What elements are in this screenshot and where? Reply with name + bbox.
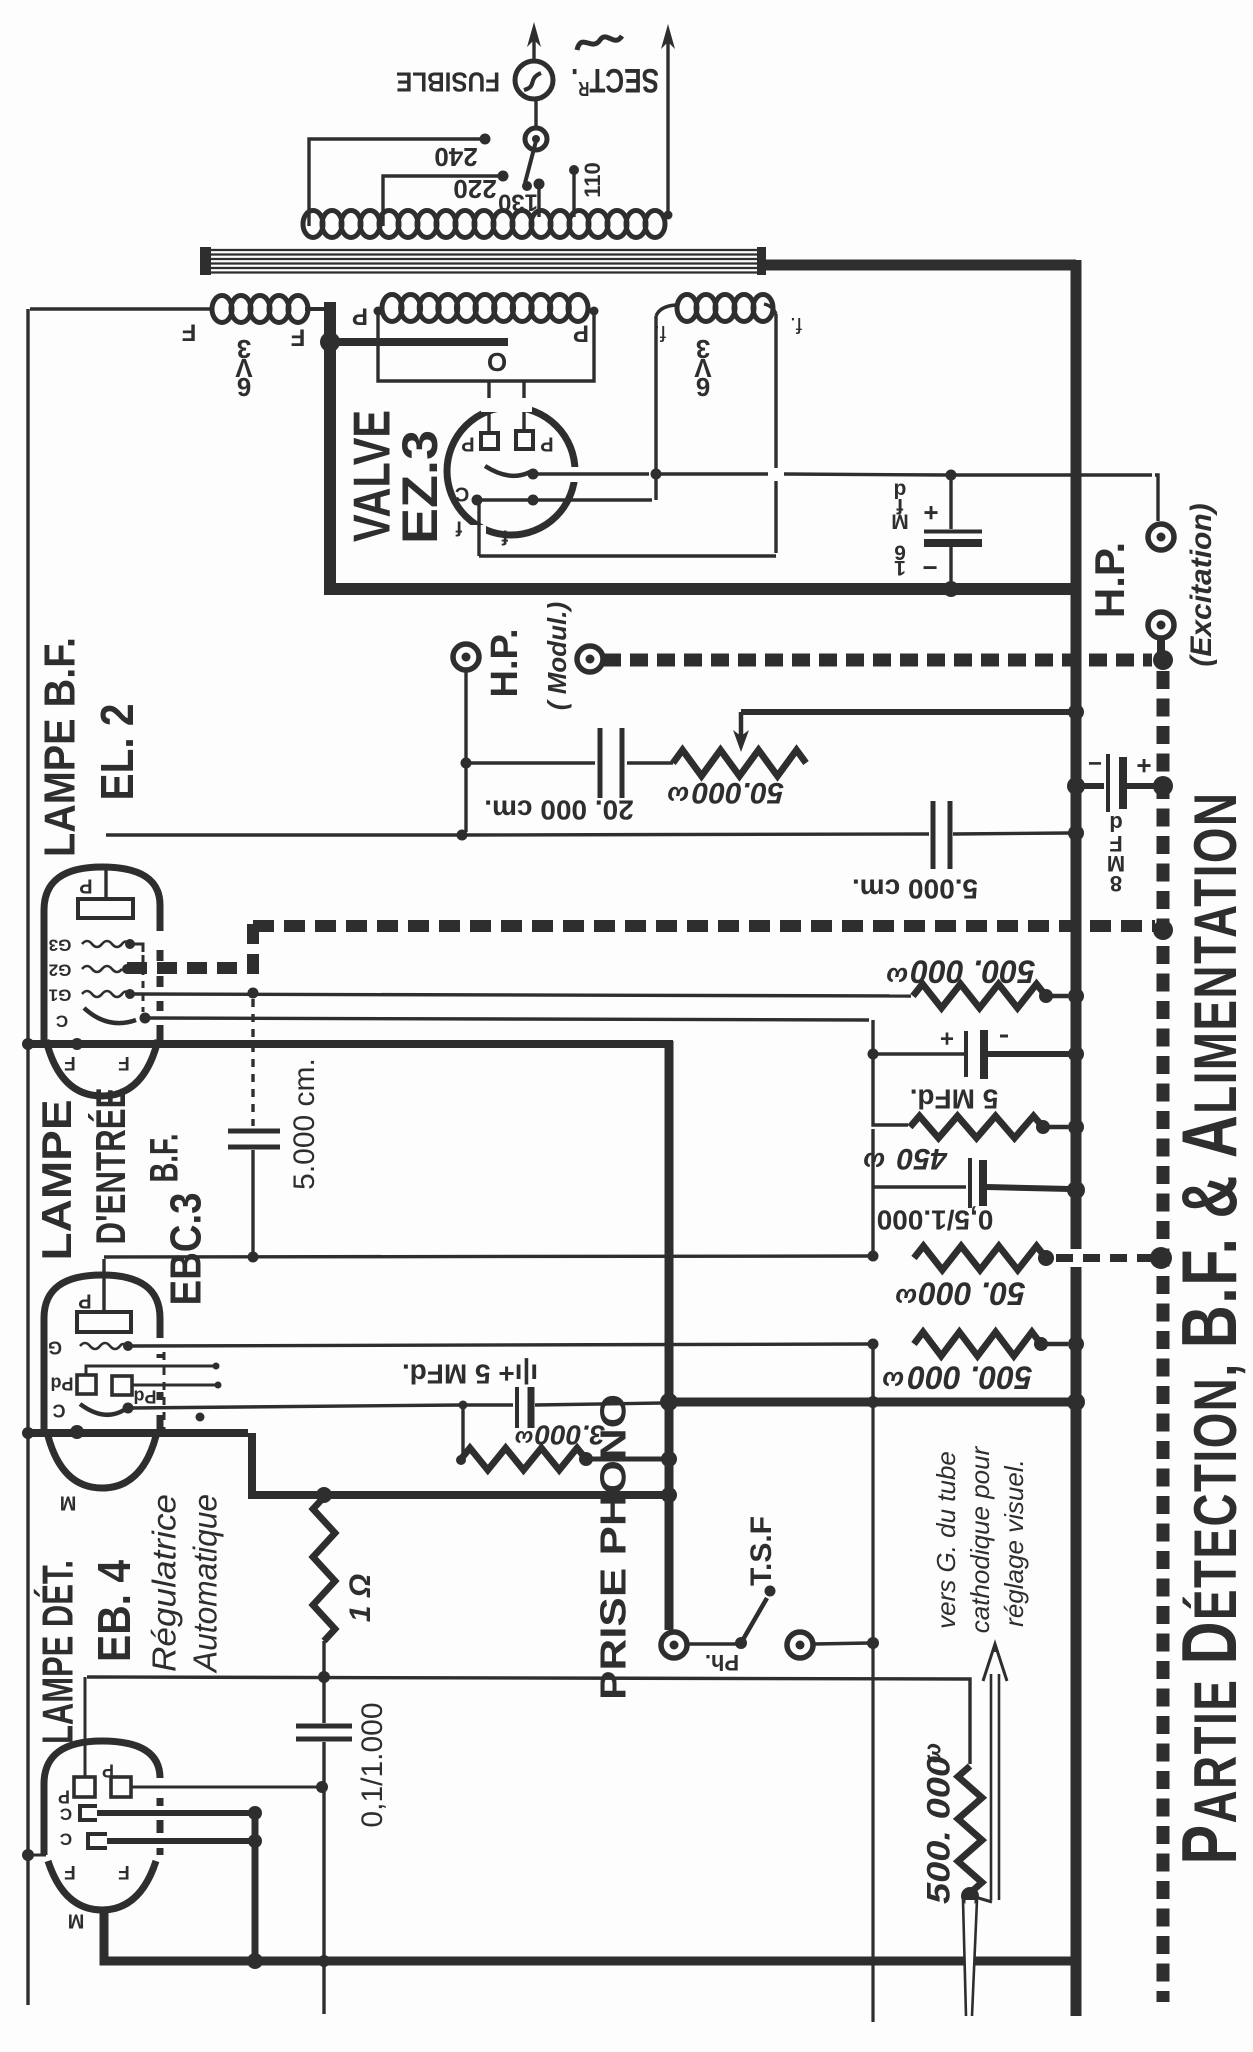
svg-text:Régulatrice: Régulatrice [146, 1494, 183, 1672]
svg-text:Ph.: Ph. [705, 1650, 739, 1675]
svg-text:G3: G3 [49, 936, 72, 955]
svg-text:1 Ω: 1 Ω [344, 1574, 377, 1622]
svg-text:LAMPE B.F.: LAMPE B.F. [36, 637, 85, 857]
svg-text:G1: G1 [49, 986, 72, 1005]
svg-text:d: d [1109, 811, 1122, 836]
svg-text:LAMPE DÉT.: LAMPE DÉT. [33, 1560, 83, 1744]
svg-text:F: F [182, 319, 197, 346]
svg-text:ω: ω [667, 781, 689, 811]
svg-text:450: 450 [897, 1142, 948, 1175]
svg-text:500. 000: 500. 000 [911, 954, 1036, 990]
svg-text:C: C [60, 1805, 72, 1824]
svg-text:3: 3 [237, 334, 251, 364]
svg-text:C: C [56, 1012, 68, 1031]
svg-text:ω: ω [895, 1283, 917, 1313]
svg-text:D'ENTRÉE: D'ENTRÉE [87, 1088, 134, 1245]
svg-text:110: 110 [580, 162, 605, 198]
svg-text:130: 130 [498, 189, 538, 216]
svg-text:d: d [894, 478, 907, 501]
svg-text:réglage visuel.: réglage visuel. [999, 1459, 1029, 1627]
svg-text:−: − [922, 553, 937, 583]
svg-text:+: + [923, 498, 938, 528]
svg-text:+: + [1136, 751, 1151, 781]
svg-text:ω: ω [515, 1426, 533, 1451]
svg-text:C: C [60, 1830, 72, 1849]
svg-text:50. 000: 50. 000 [918, 1276, 1025, 1312]
svg-text:F: F [291, 324, 306, 351]
svg-text:F: F [64, 1052, 76, 1073]
svg-text:500. 000: 500. 000 [908, 1360, 1033, 1396]
svg-text:0,1/1.000: 0,1/1.000 [356, 1702, 389, 1827]
svg-text:P: P [78, 1290, 91, 1312]
svg-text:240: 240 [434, 142, 477, 172]
svg-text:f: f [455, 517, 462, 539]
svg-text:H.P.: H.P. [484, 628, 526, 697]
svg-text:50.000: 50.000 [692, 776, 784, 809]
svg-text:F: F [64, 1861, 76, 1882]
svg-text:EB. 4: EB. 4 [88, 1560, 140, 1662]
svg-text:vers G. du tube: vers G. du tube [931, 1451, 961, 1629]
svg-text:5 MFd.: 5 MFd. [910, 1084, 999, 1115]
svg-text:ω: ω [863, 1147, 885, 1177]
svg-text:3: 3 [696, 334, 710, 364]
svg-text:T.S.F: T.S.F [745, 1516, 778, 1586]
svg-text:C: C [455, 483, 469, 505]
svg-text:PRISE PHONO: PRISE PHONO [593, 1394, 634, 1700]
svg-text:0,5/1.000: 0,5/1.000 [877, 1205, 994, 1236]
svg-text:Pd: Pd [50, 1373, 73, 1393]
svg-text:−: − [1088, 750, 1102, 777]
svg-text:5.000 cm.: 5.000 cm. [288, 1058, 321, 1190]
svg-text:M: M [60, 1492, 77, 1514]
svg-text:M: M [68, 1910, 85, 1932]
svg-text:EBC.3: EBC.3 [162, 1193, 211, 1306]
svg-text:LAMPE: LAMPE [33, 1100, 80, 1261]
svg-text:EL. 2: EL. 2 [91, 704, 143, 801]
svg-text:f: f [501, 526, 508, 548]
svg-text:P: P [573, 320, 589, 347]
svg-text:O: O [487, 347, 507, 377]
svg-text:+: + [940, 1025, 954, 1052]
svg-text:H.P.: H.P. [1086, 542, 1133, 618]
svg-text:P: P [58, 1786, 70, 1806]
svg-text:cathodique pour: cathodique pour [965, 1445, 995, 1633]
svg-text:f.: f. [790, 313, 802, 338]
svg-text:F: F [118, 1052, 130, 1073]
svg-text:B.F.: B.F. [143, 1134, 187, 1183]
svg-text:ω: ω [882, 1366, 904, 1396]
svg-text:FUSIBLE: FUSIBLE [396, 67, 500, 98]
svg-text:ω: ω [886, 962, 908, 992]
svg-text:P: P [540, 433, 553, 455]
svg-text:P: P [102, 1760, 114, 1780]
svg-text:ω: ω [919, 1743, 946, 1763]
svg-text:P: P [352, 303, 368, 330]
svg-text:EZ.3: EZ.3 [392, 430, 448, 544]
svg-text:G: G [48, 1337, 62, 1357]
svg-text:Automatique: Automatique [187, 1494, 224, 1674]
svg-text:P: P [461, 433, 474, 455]
svg-text:G2: G2 [49, 961, 72, 980]
svg-text:C: C [53, 1400, 66, 1420]
svg-text:ı|ı+ 5 MFd.: ı|ı+ 5 MFd. [402, 1359, 538, 1390]
svg-text:220: 220 [453, 174, 496, 204]
svg-text:Pd: Pd [133, 1386, 156, 1406]
svg-text:F: F [118, 1861, 130, 1882]
svg-text:500. 000: 500. 000 [920, 1756, 956, 1904]
svg-text:P: P [79, 875, 92, 897]
svg-text:(Excitation): (Excitation) [1185, 503, 1218, 666]
svg-text:( Modul.): ( Modul.) [542, 602, 572, 710]
svg-text:20. 000 cm.: 20. 000 cm. [484, 795, 633, 826]
svg-text:6: 6 [894, 540, 906, 563]
svg-text:5.000 cm.: 5.000 cm. [852, 874, 978, 905]
